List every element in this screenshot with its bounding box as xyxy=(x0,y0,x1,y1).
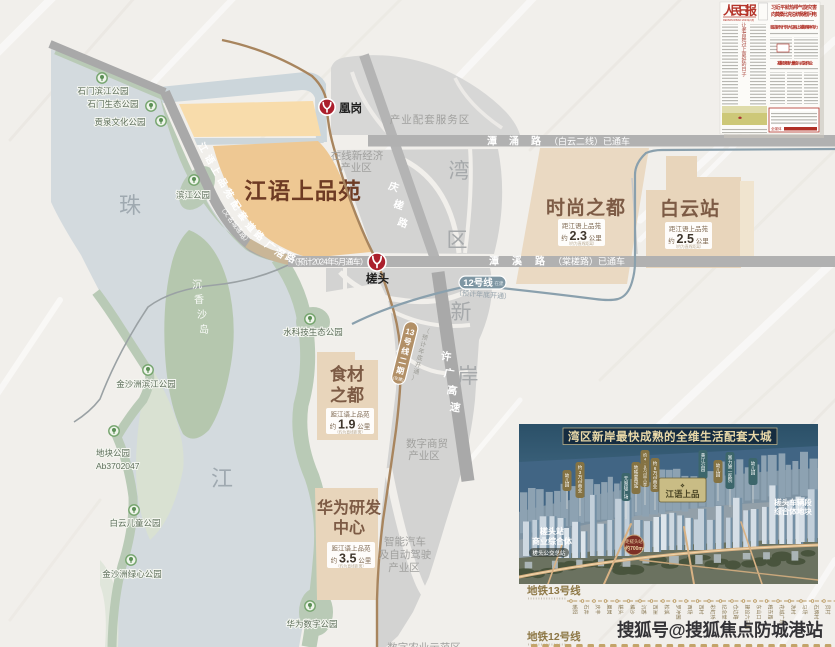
svg-text:白云儿童公园: 白云儿童公园 xyxy=(109,518,160,528)
svg-text:12号线: 12号线 xyxy=(463,277,493,289)
svg-text:RENMIN RIBAO 2023年3月: RENMIN RIBAO 2023年3月 xyxy=(723,18,754,22)
svg-text:（白云二线）已通车: （白云二线）已通车 xyxy=(549,136,630,147)
svg-text:溪: 溪 xyxy=(512,255,523,268)
svg-text:石牌村: 石牌村 xyxy=(812,605,819,620)
svg-text:岛: 岛 xyxy=(199,323,209,336)
svg-text:距槎头站: 距槎头站 xyxy=(625,538,643,545)
svg-text:水科技生态公园: 水科技生态公园 xyxy=(283,327,343,337)
svg-text:路: 路 xyxy=(531,135,542,148)
svg-text:中心: 中心 xyxy=(333,518,365,537)
svg-text:产业区: 产业区 xyxy=(388,561,420,574)
svg-text:贡泉文化公园: 贡泉文化公园 xyxy=(94,117,145,127)
svg-text:朝阳: 朝阳 xyxy=(571,605,578,615)
svg-text:产业配套服务区: 产业配套服务区 xyxy=(390,113,471,126)
svg-text:沉: 沉 xyxy=(192,278,202,291)
svg-text:石门滨江公园: 石门滨江公园 xyxy=(77,86,128,96)
svg-text:金沙洲滨江公园: 金沙洲滨江公园 xyxy=(116,379,176,389)
svg-text:（棠槎路）已通车: （棠槎路）已通车 xyxy=(553,256,625,267)
svg-text:沙: 沙 xyxy=(197,309,207,321)
svg-text:彩虹桥: 彩虹桥 xyxy=(709,605,716,620)
svg-text:约700m: 约700m xyxy=(625,545,643,552)
svg-text:站: 站 xyxy=(634,483,639,490)
svg-text:（约为直线距离）: （约为直线距离） xyxy=(336,564,366,569)
svg-text:产业区: 产业区 xyxy=(408,449,440,462)
svg-text:向莫桑比克总统致慰问电: 向莫桑比克总统致慰问电 xyxy=(771,11,817,18)
svg-text:产业区: 产业区 xyxy=(340,161,372,174)
svg-text:食材: 食材 xyxy=(330,364,364,384)
svg-text:（约为直线距离）: （约为直线距离） xyxy=(673,244,703,249)
svg-text:珠: 珠 xyxy=(119,193,141,218)
svg-text:凝聚磅礴力量 奋斗成就伟业: 凝聚磅礴力量 奋斗成就伟业 xyxy=(777,60,813,66)
svg-text:槎头站: 槎头站 xyxy=(540,526,564,536)
svg-text:Ab3702047: Ab3702047 xyxy=(96,461,140,471)
svg-text:搜狐号@搜狐焦点防城港站: 搜狐号@搜狐焦点防城港站 xyxy=(617,620,824,640)
svg-text:地块公园: 地块公园 xyxy=(96,448,130,458)
svg-text:冼村: 冼村 xyxy=(789,605,796,615)
svg-text:东山口: 东山口 xyxy=(755,605,762,620)
svg-text:槎头车辆段: 槎头车辆段 xyxy=(774,497,812,507)
svg-text:石门生态公园: 石门生态公园 xyxy=(87,99,138,109)
svg-text:湾区新岸最快成熟的全维生活配套大城: 湾区新岸最快成熟的全维生活配套大城 xyxy=(568,430,772,444)
svg-text:（约为直线距离）: （约为直线距离） xyxy=(335,430,365,435)
svg-text:马场: 马场 xyxy=(801,605,808,615)
svg-text:槎头: 槎头 xyxy=(617,605,624,615)
svg-text:潭: 潭 xyxy=(487,135,497,148)
svg-text:华为数字公园: 华为数字公园 xyxy=(286,619,337,629)
svg-text:业: 业 xyxy=(578,487,583,493)
svg-text:金沙洲绿心公园: 金沙洲绿心公园 xyxy=(102,569,162,579)
svg-text:之都: 之都 xyxy=(330,385,364,405)
svg-text:白云站: 白云站 xyxy=(660,197,720,220)
svg-text:区: 区 xyxy=(447,229,468,252)
svg-text:业: 业 xyxy=(653,483,658,489)
svg-text:罗冲围: 罗冲围 xyxy=(674,605,681,620)
svg-text:华为研发: 华为研发 xyxy=(317,498,382,517)
svg-text:潭: 潭 xyxy=(489,255,499,268)
svg-text:子: 子 xyxy=(742,71,747,78)
svg-text:槎头: 槎头 xyxy=(366,272,389,286)
svg-text:（约为直线距离）: （约为直线距离） xyxy=(566,241,596,246)
svg-text:场: 场 xyxy=(624,494,629,501)
svg-text:综合体地块: 综合体地块 xyxy=(774,506,812,516)
svg-text:地铁13号线: 地铁13号线 xyxy=(527,584,581,597)
svg-text:（预计2024年5月通车）: （预计2024年5月通车） xyxy=(290,257,368,267)
svg-text:路: 路 xyxy=(535,255,546,268)
svg-text:西场: 西场 xyxy=(686,605,693,615)
svg-text:凰岗: 凰岗 xyxy=(339,101,362,115)
svg-text:在线新经济: 在线新经济 xyxy=(331,149,384,162)
svg-text:时尚之都: 时尚之都 xyxy=(546,196,626,219)
svg-text:梅东路: 梅东路 xyxy=(766,605,773,620)
svg-text:全媒体: 全媒体 xyxy=(771,126,782,131)
svg-text:地铁12号线: 地铁12号线 xyxy=(527,630,581,643)
svg-text:数字商贸: 数字商贸 xyxy=(406,437,448,450)
svg-text:西洲: 西洲 xyxy=(651,605,657,615)
svg-text:涌: 涌 xyxy=(509,135,519,148)
svg-text:智能汽车: 智能汽车 xyxy=(384,535,426,548)
svg-text:新: 新 xyxy=(451,301,472,324)
svg-text:仓边路: 仓边路 xyxy=(732,605,739,620)
svg-text:滨江公园: 滨江公园 xyxy=(176,190,210,200)
svg-text:员村: 员村 xyxy=(824,605,831,615)
svg-text:湾: 湾 xyxy=(449,160,470,183)
svg-text:纪念堂: 纪念堂 xyxy=(720,605,727,620)
svg-text:香: 香 xyxy=(194,294,204,306)
svg-text:奋进新时代伟大征程上凝聚精神伟力: 奋进新时代伟大征程上凝聚精神伟力 xyxy=(769,24,818,30)
svg-text:沉香: 沉香 xyxy=(640,605,647,615)
svg-text:院: 院 xyxy=(728,477,733,484)
svg-text:及自动驾驶: 及自动驾驶 xyxy=(379,548,432,561)
svg-text:西村: 西村 xyxy=(697,605,704,615)
svg-text:凰岗: 凰岗 xyxy=(605,605,611,615)
svg-text:学: 学 xyxy=(643,483,647,488)
svg-text:江语上品: 江语上品 xyxy=(665,489,700,499)
svg-text:松溪: 松溪 xyxy=(663,605,670,615)
svg-text:庆丰: 庆丰 xyxy=(594,605,601,615)
svg-text:槎头公交总站: 槎头公交总站 xyxy=(532,549,566,557)
svg-text:石井: 石井 xyxy=(582,605,589,615)
svg-text:江: 江 xyxy=(211,466,233,491)
svg-text:商业综合体: 商业综合体 xyxy=(532,536,573,546)
svg-text:岸: 岸 xyxy=(458,365,479,388)
svg-text:数字农业示范区: 数字农业示范区 xyxy=(387,641,461,647)
svg-text:横沙: 横沙 xyxy=(628,605,635,615)
svg-text:在建: 在建 xyxy=(495,280,504,287)
svg-text:习近平就热带气旋灾害: 习近平就热带气旋灾害 xyxy=(771,4,817,11)
svg-text:人民日报: 人民日报 xyxy=(723,3,757,18)
